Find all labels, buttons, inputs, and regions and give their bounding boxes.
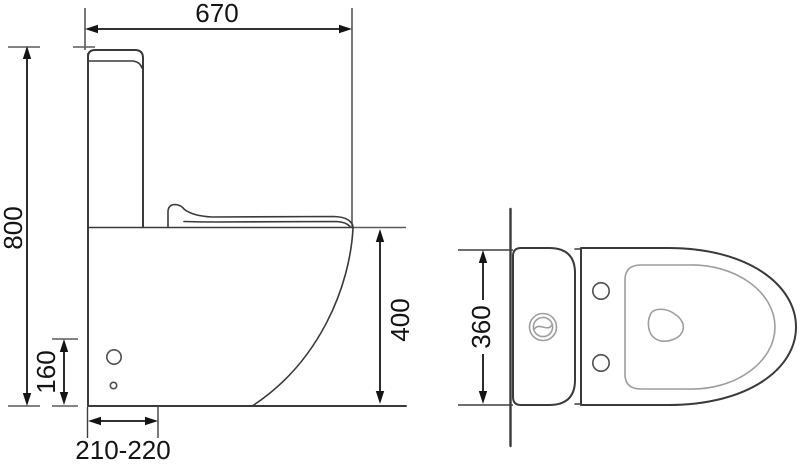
- dim-label-inlet-height: 160: [31, 350, 61, 393]
- arrowhead-left-icon: [85, 25, 98, 33]
- flush-button-wave: [535, 326, 552, 330]
- dimension-bowl-height: 400: [376, 229, 415, 404]
- dim-label-overall-length: 670: [195, 0, 238, 28]
- arrowhead-down-icon: [23, 393, 31, 406]
- arrowhead-down-icon: [479, 391, 487, 404]
- technical-drawing-page: 670 800 160 210-220 400: [0, 0, 800, 464]
- arrowhead-up-icon: [479, 250, 487, 263]
- dim-label-outlet-distance: 210-220: [75, 435, 170, 464]
- toilet-dimension-diagram: 670 800 160 210-220 400: [0, 0, 800, 464]
- dim-label-overall-height: 800: [0, 206, 28, 249]
- bowl-plan-outline: [581, 248, 796, 405]
- flush-button-icon: [530, 314, 557, 341]
- dimension-inlet-height: 160: [31, 339, 78, 406]
- seat-lid-profile: [168, 205, 353, 228]
- cistern-lid-line: [88, 61, 142, 68]
- arrowhead-down-icon: [376, 391, 384, 404]
- dim-label-overall-width: 360: [466, 305, 496, 348]
- water-spot-outline: [648, 309, 683, 341]
- arrowhead-right-icon: [339, 25, 352, 33]
- top-view: [511, 209, 797, 446]
- seat-profile-inner-line: [184, 222, 350, 227]
- fixing-hole: [110, 382, 116, 388]
- arrowhead-down-icon: [60, 392, 68, 405]
- cistern-tank: [88, 50, 143, 227]
- dim-label-bowl-height: 400: [385, 298, 415, 341]
- seat-hinge-bolt-top: [593, 283, 609, 299]
- arrowhead-up-icon: [376, 229, 384, 242]
- side-view: [88, 50, 406, 406]
- arrowhead-right-icon: [145, 417, 158, 425]
- bowl-front-curve: [253, 228, 353, 406]
- dimension-overall-length: 670: [85, 0, 352, 227]
- dimension-overall-width: 360: [458, 250, 513, 405]
- seat-lid-plan-outline: [625, 265, 775, 389]
- inlet-hole: [107, 350, 121, 364]
- seat-hinge-bolt-bottom: [593, 355, 609, 371]
- arrowhead-left-icon: [88, 417, 101, 425]
- dimension-outlet-distance: 210-220: [75, 406, 170, 464]
- arrowhead-up-icon: [60, 339, 68, 352]
- arrowhead-up-icon: [23, 46, 31, 59]
